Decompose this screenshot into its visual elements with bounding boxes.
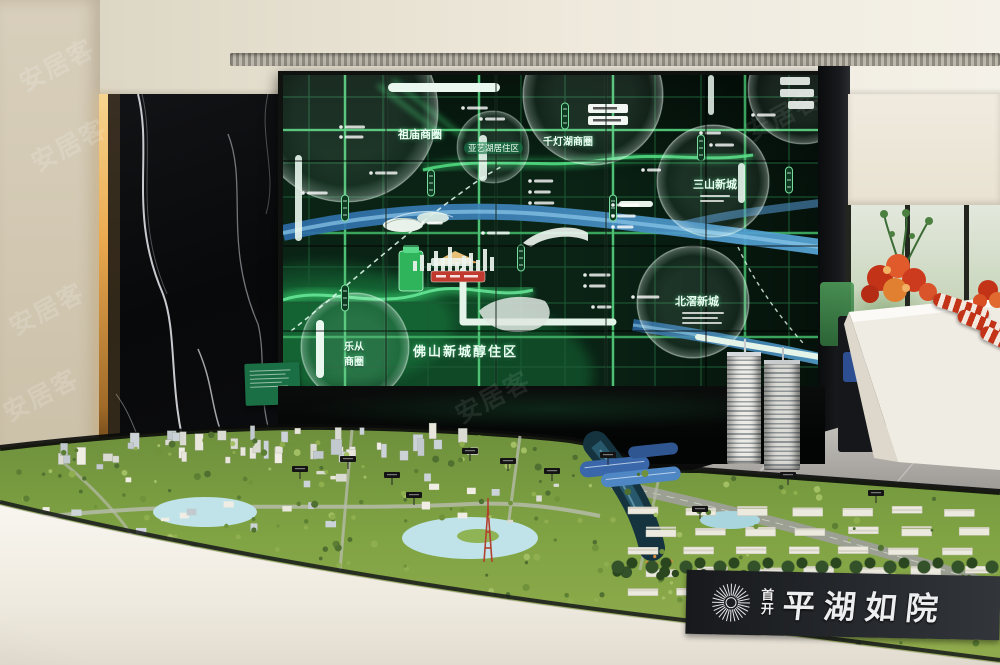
sanshan-sub-lines (700, 192, 734, 205)
label-lecong-district: 乐从 商圈 (344, 338, 364, 368)
red-flower-arrangement (861, 254, 937, 303)
label-qiandenghu-district: 千灯湖商圈 (543, 133, 593, 148)
label-zumiao-district: 祖庙商圈 (398, 126, 442, 142)
project-logo-band: 首 开 平湖如院 (685, 570, 1000, 641)
sunburst-icon (710, 581, 753, 624)
label-sanshan-newtown: 三山新城 (693, 176, 737, 192)
beijiao-sub-lines (682, 309, 726, 327)
project-name: 平湖如院 (781, 581, 950, 630)
right-ceiling-bulkhead (848, 94, 1000, 206)
brand-char-bottom: 开 (761, 603, 774, 617)
label-yayihu-area: 亚艺湖居住区 (464, 142, 523, 154)
led-light-strip (99, 94, 108, 462)
label-foshan-newtown-area: 佛山新城醇住区 (413, 341, 518, 360)
sales-gallery-photo: 祖庙商圈 千灯湖商圈 亚艺湖居住区 三山新城 北滘新城 乐从 商圈 佛山新城醇住… (0, 0, 1000, 665)
air-vent-grille (230, 53, 1000, 66)
plant-sprigs (884, 214, 928, 264)
brand-mark: 首 开 (761, 590, 775, 618)
label-beijiao-newtown: 北滘新城 (675, 293, 719, 309)
